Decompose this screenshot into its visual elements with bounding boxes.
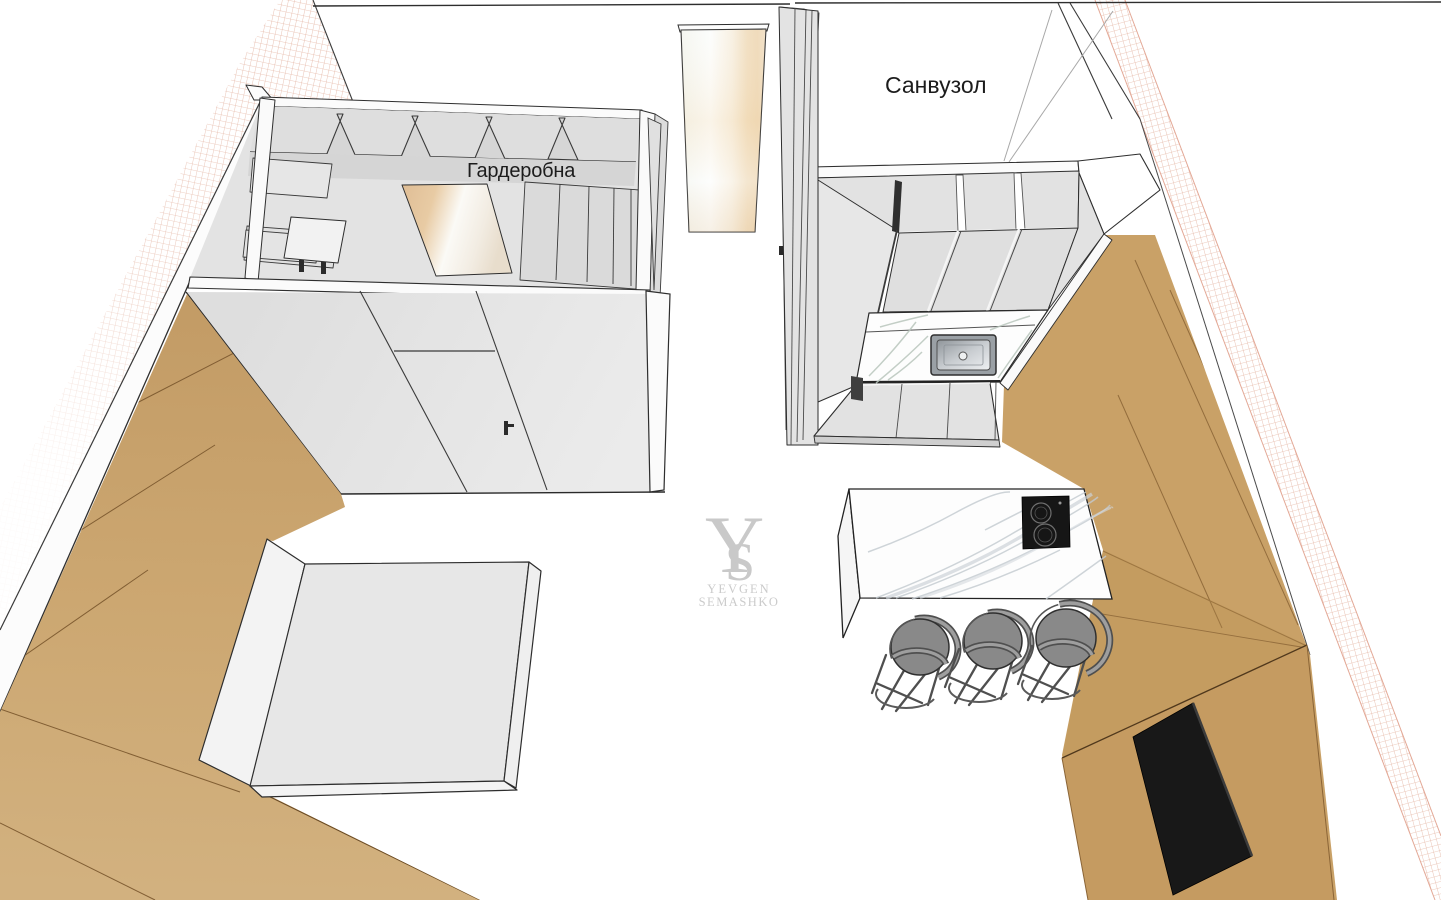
svg-text:Санвузол: Санвузол [885,72,987,98]
svg-text:Гардеробна: Гардеробна [467,160,576,182]
svg-text:YEVGEN: YEVGEN [707,582,770,596]
svg-text:SEMASHKO: SEMASHKO [699,595,780,609]
